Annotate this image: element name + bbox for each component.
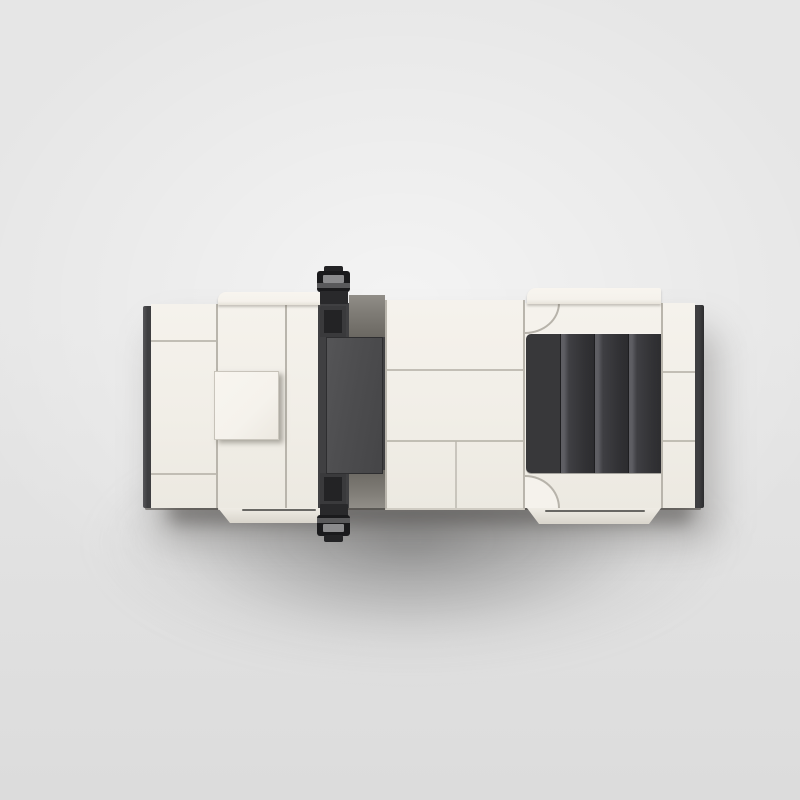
windshield-corner-top <box>320 306 346 337</box>
engine-louvers <box>526 334 662 473</box>
windshield-section <box>318 303 385 508</box>
deck-curved-corner-bottom <box>525 475 560 508</box>
side-mirror-top <box>316 266 351 304</box>
windshield-corner-bottom <box>320 473 346 505</box>
rear-fender-top <box>527 288 661 304</box>
rear-panel-seam <box>663 440 695 442</box>
front-fender-bottom <box>218 508 320 523</box>
tire-shadow-line <box>242 509 316 511</box>
tire-shadow-line <box>545 510 645 512</box>
louver-fin <box>560 334 594 473</box>
front-bumper-trim <box>143 306 151 508</box>
a-pillar-bottom <box>349 470 385 508</box>
rear-fender-bottom <box>527 508 661 524</box>
mirror-base <box>320 291 348 304</box>
rear-bumper-trim <box>695 305 704 508</box>
roof-seam <box>387 369 523 371</box>
rear-deck <box>525 303 695 508</box>
louver-fin <box>628 334 662 473</box>
mirror-cap <box>324 535 343 542</box>
hood-seam <box>151 340 216 342</box>
hood-scoop <box>214 371 279 440</box>
a-pillar-top <box>349 295 385 337</box>
windshield-glass <box>326 337 383 474</box>
mirror-head <box>317 515 350 536</box>
front-fender-top <box>218 292 320 305</box>
side-mirror-bottom <box>316 504 351 542</box>
hood-seam <box>151 473 216 475</box>
mirror-band <box>317 518 350 523</box>
roof-seam-vertical <box>455 441 457 508</box>
cowl-panel <box>287 303 318 508</box>
product-photo <box>0 0 800 800</box>
louver-fin <box>594 334 628 473</box>
rear-panel-seam <box>663 371 695 373</box>
mirror-band <box>317 283 350 288</box>
rear-quarter-panel <box>661 303 695 508</box>
mirror-face <box>323 275 344 283</box>
mirror-head <box>317 271 350 292</box>
mirror-face <box>323 524 344 532</box>
hood-panel-front <box>151 304 218 508</box>
roof-panel <box>385 300 525 510</box>
deck-curved-corner-top <box>525 303 560 334</box>
